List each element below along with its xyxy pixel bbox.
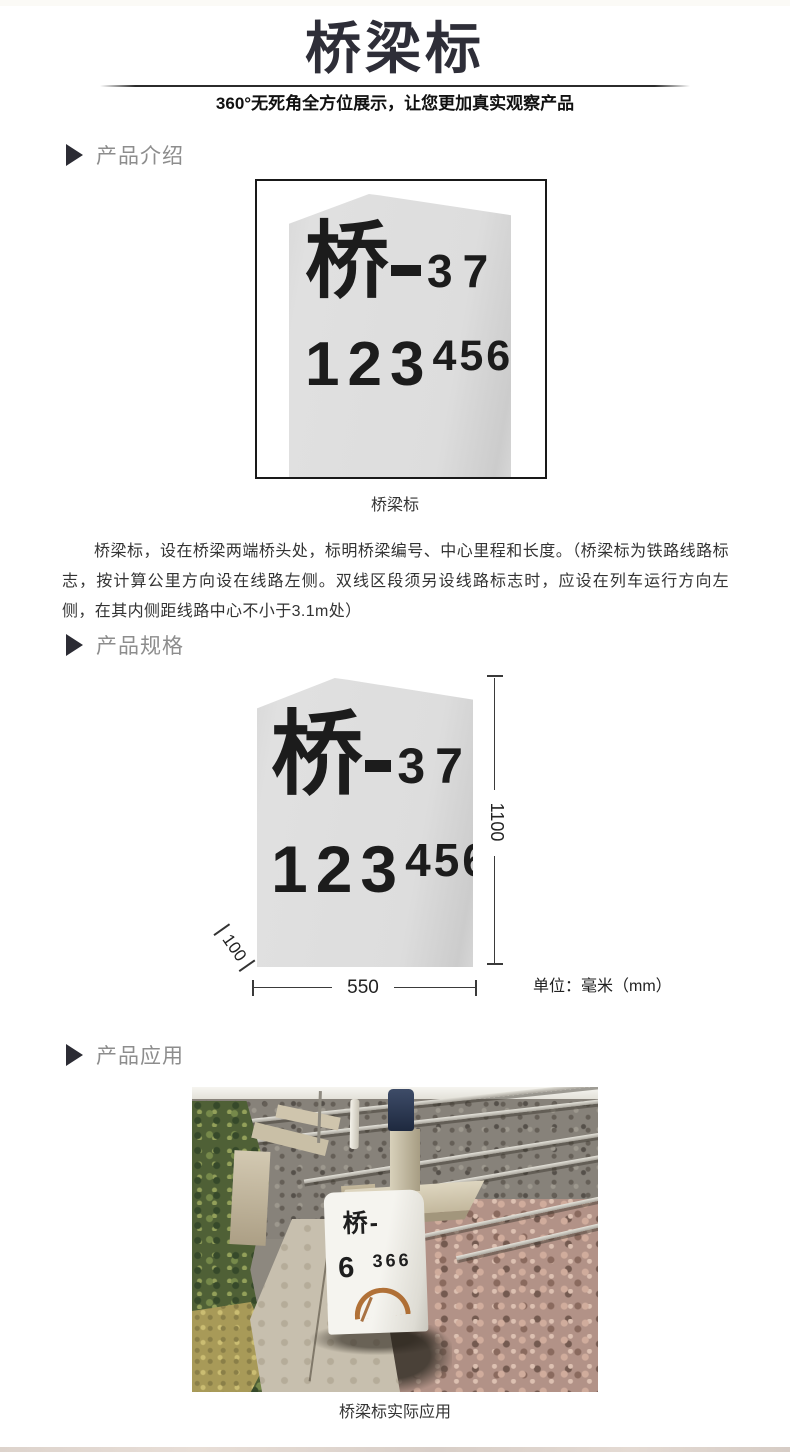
section-header-intro: 产品介绍 [66, 140, 184, 170]
width-dimension: 550 [332, 977, 394, 999]
intro-description: 桥梁标，设在桥梁两端桥头处，标明桥梁编号、中心里程和长度。（桥梁标为铁路线路标志… [62, 537, 729, 627]
mileage-superscript: 456 [432, 335, 513, 378]
page-subtitle: 360°无死角全方位展示，让您更加真实观察产品 [0, 92, 790, 116]
marker-face: 桥 — 37 123 456 [257, 678, 473, 902]
photo-signal-head [388, 1089, 414, 1131]
depth-dimension-value: 100 [213, 923, 255, 972]
bridge-number: 37 [397, 741, 473, 791]
intro-caption: 桥梁标 [0, 491, 790, 515]
product-detail-page: 桥梁标 360°无死角全方位展示，让您更加真实观察产品 产品介绍 桥 — 37 … [0, 0, 790, 1452]
section-label: 产品介绍 [96, 140, 184, 170]
mileage-main: 123 [305, 334, 432, 396]
mileage-main: 123 [271, 836, 405, 902]
arrow-right-icon [66, 1044, 83, 1066]
marker-line1: 桥 — 37 [305, 220, 511, 302]
intro-figure: 桥 — 37 123 456 [255, 179, 547, 479]
section-label: 产品规格 [96, 630, 184, 660]
title-divider [100, 85, 690, 87]
bridge-marker-diagram: 桥 — 37 123 456 [257, 678, 473, 967]
marker-face: 桥 — 37 123 456 [289, 194, 511, 396]
dim-tick [475, 980, 477, 996]
depth-dimension: 100 [203, 909, 265, 986]
dim-line-vertical [494, 856, 495, 964]
bridge-character: 桥 [305, 220, 389, 302]
dim-line-horizontal [394, 987, 476, 988]
marker-line1: 桥 — 37 [271, 710, 473, 800]
photo-bridge-marker-stone: 桥- 6 366 [324, 1189, 429, 1334]
previous-image-edge [0, 0, 790, 6]
bridge-character: 桥 [271, 710, 363, 800]
marker-line2: 123 456 [305, 334, 511, 396]
arrow-right-icon [66, 634, 83, 656]
next-image-edge [0, 1447, 790, 1452]
arrow-right-icon [66, 144, 83, 166]
unit-label: 单位：毫米（mm） [533, 972, 672, 996]
dim-line-horizontal [254, 987, 332, 988]
dash-mark: — [365, 760, 391, 772]
photo-parapet-post [230, 1150, 271, 1246]
dim-line-vertical [494, 678, 495, 790]
mileage-superscript: 456 [405, 837, 491, 883]
bridge-number: 37 [427, 248, 498, 294]
height-dimension: 1100 [487, 799, 507, 845]
application-photo: 桥- 6 366 [192, 1087, 598, 1392]
photo-marker-number-big: 6 [338, 1252, 355, 1285]
dim-tick [487, 963, 503, 965]
photo-signal-pedestal [390, 1129, 420, 1191]
marker-line2: 123 456 [271, 836, 473, 902]
section-label: 产品应用 [96, 1040, 184, 1070]
photo-marker-line2: 6 366 [325, 1237, 427, 1285]
photo-rust-stain [352, 1285, 411, 1320]
photo-marker-number-small: 366 [372, 1250, 412, 1271]
dim-tick [487, 675, 503, 677]
section-header-application: 产品应用 [66, 1040, 184, 1070]
application-caption: 桥梁标实际应用 [0, 1398, 790, 1422]
page-title: 桥梁标 [0, 18, 790, 80]
bridge-marker-drawing: 桥 — 37 123 456 [289, 194, 511, 477]
section-header-spec: 产品规格 [66, 630, 184, 660]
photo-white-post [350, 1099, 360, 1149]
photo-marker-line1: 桥- [324, 1189, 426, 1240]
dash-mark: — [391, 265, 421, 276]
